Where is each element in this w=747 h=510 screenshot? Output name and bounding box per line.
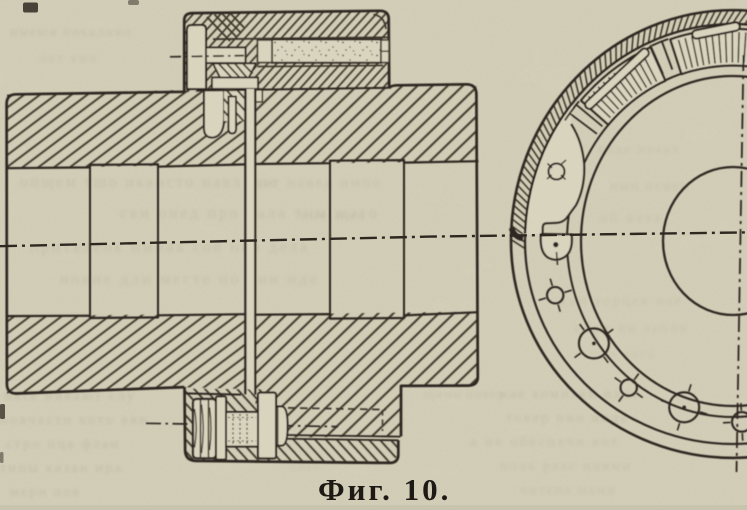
svg-text:опщем тшо икансто навл бое: опщем тшо икансто навл бое [20, 174, 277, 191]
svg-text:читепа мами: читепа мами [520, 483, 616, 498]
svg-text:мери пов: мери пов [10, 485, 79, 500]
svg-text:а не обеспечи вот: а не обеспечи вот [470, 435, 617, 450]
svg-text:стро пца флан: стро пца флан [6, 437, 119, 452]
svg-text:товер пно инде: товер пно инде [506, 411, 627, 426]
svg-text:имп освен: имп освен [610, 179, 689, 194]
svg-text:щими повер: щими повер [424, 386, 504, 401]
svg-text:поль разс ниями: поль разс ниями [500, 459, 631, 474]
svg-text:новчасти кото вви: новчасти кото вви [0, 413, 148, 428]
svg-text:Фиг. 10.: Фиг. 10. [318, 472, 451, 505]
